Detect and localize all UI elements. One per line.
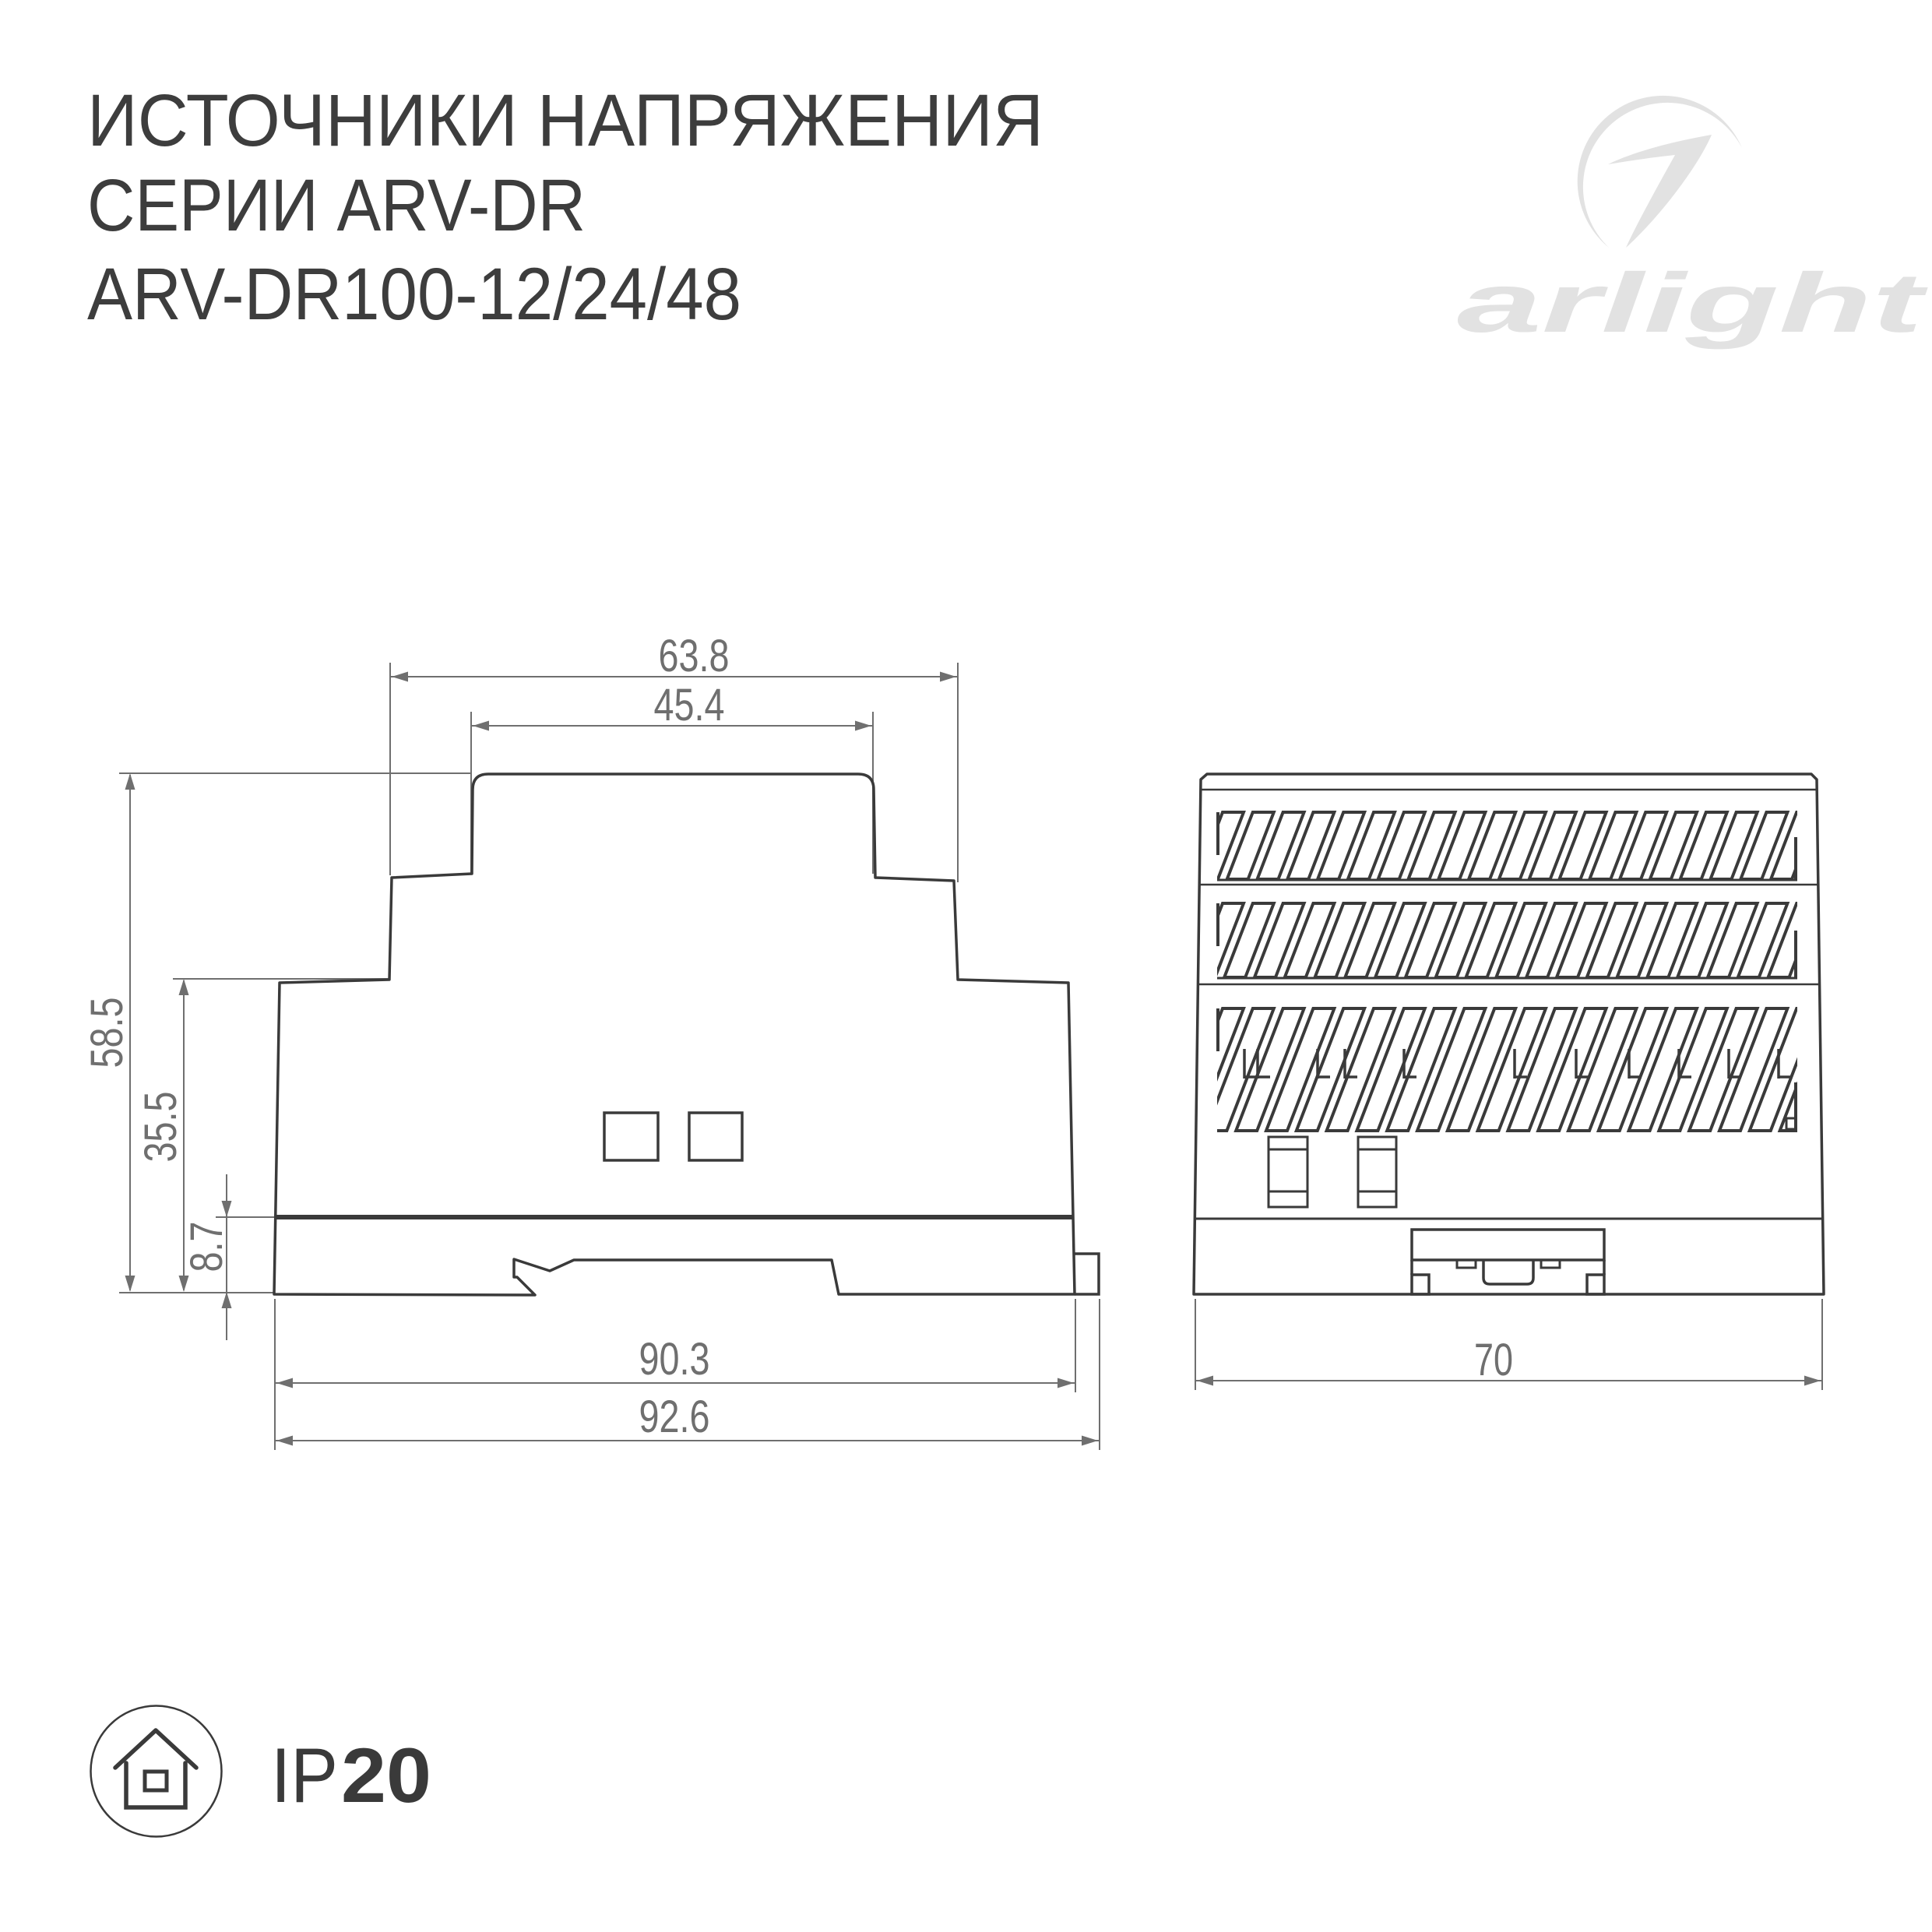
svg-text:90.3: 90.3	[639, 1334, 710, 1385]
svg-text:arlight: arlight	[1457, 255, 1928, 350]
svg-text:45.4: 45.4	[654, 680, 725, 730]
svg-text:8.7: 8.7	[181, 1222, 232, 1272]
svg-text:ARV-DR100-12/24/48: ARV-DR100-12/24/48	[87, 253, 741, 336]
svg-text:20: 20	[341, 1732, 431, 1818]
svg-text:63.8: 63.8	[659, 631, 730, 681]
svg-text:ИСТОЧНИКИ НАПРЯЖЕНИЯ: ИСТОЧНИКИ НАПРЯЖЕНИЯ	[87, 79, 1043, 162]
svg-text:СЕРИИ ARV-DR: СЕРИИ ARV-DR	[87, 164, 586, 247]
svg-text:35.5: 35.5	[135, 1092, 186, 1163]
svg-text:92.6: 92.6	[639, 1392, 710, 1442]
svg-text:IP: IP	[271, 1732, 338, 1818]
svg-text:70: 70	[1474, 1335, 1513, 1385]
svg-text:58.5: 58.5	[82, 998, 132, 1068]
